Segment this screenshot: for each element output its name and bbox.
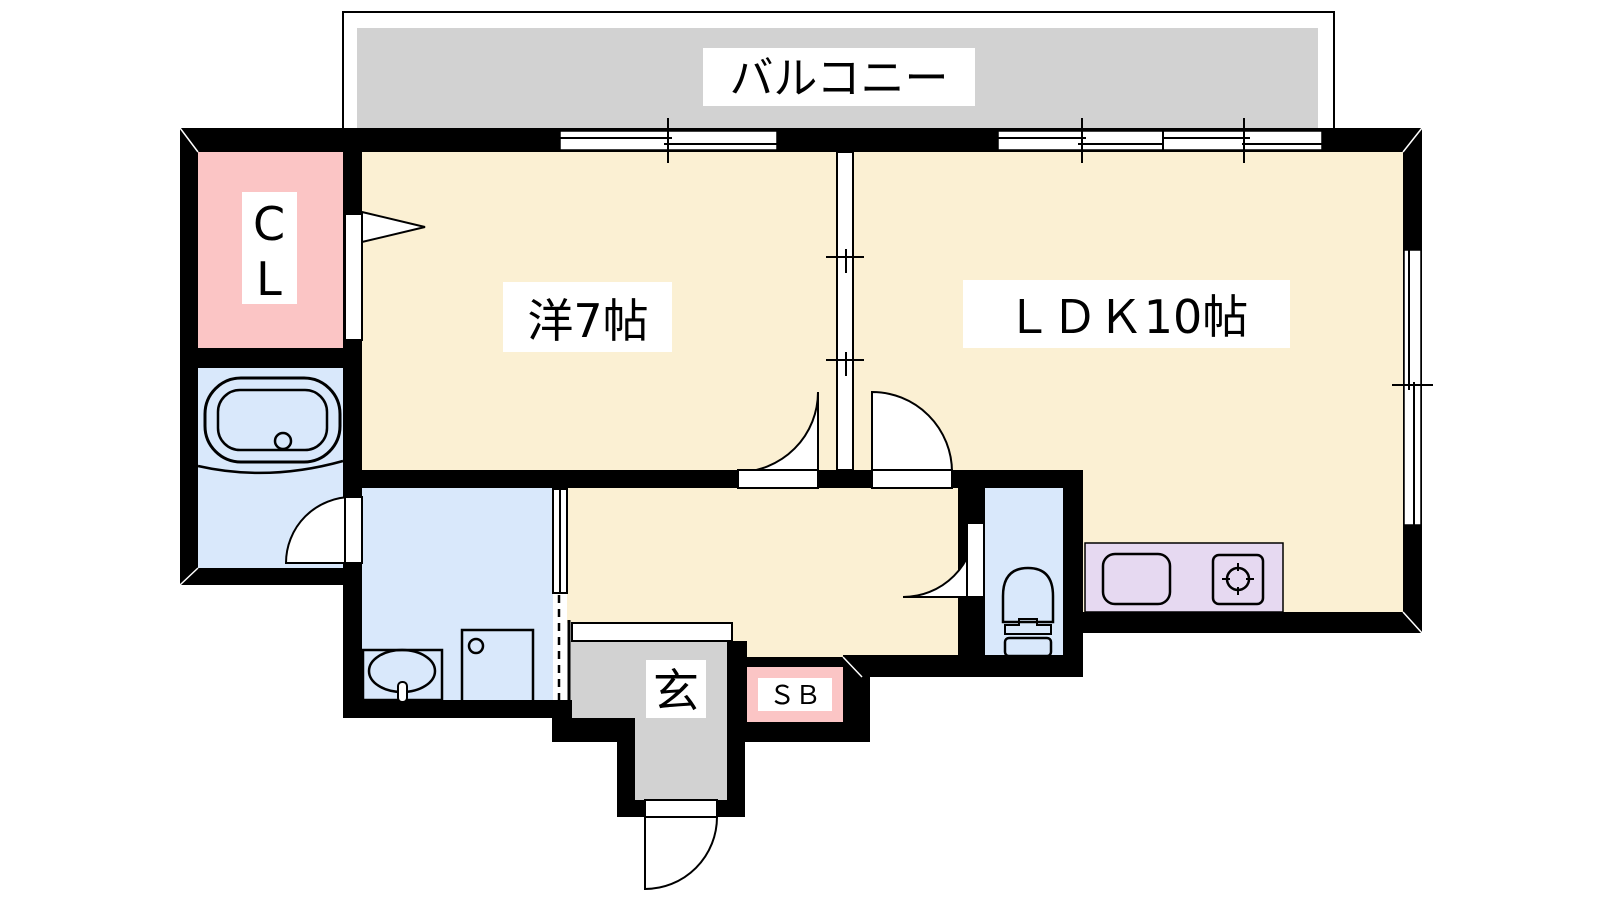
- wall-closet-bath-divider: [198, 348, 343, 368]
- wall-washroom-bottom: [343, 700, 570, 718]
- floorplan-drawing: バルコニー 洋7帖 ＬＤＫ10帖 C L 玄 ＳＢ: [0, 0, 1600, 900]
- wall-shoebox-top: [747, 657, 843, 667]
- wall-toilet-right: [1063, 488, 1083, 677]
- wall-ldk-bottom: [1083, 612, 1422, 633]
- washroom-doorway: [553, 489, 569, 720]
- wall-left: [180, 128, 198, 585]
- balcony-label: バルコニー: [729, 53, 948, 104]
- shoebox-label: ＳＢ: [769, 681, 821, 711]
- bathroom-door-leaf: [345, 497, 362, 563]
- wall-hall-toilet-bottom: [843, 655, 1083, 677]
- toilet-door-leaf: [967, 523, 984, 597]
- floorplan: バルコニー 洋7帖 ＬＤＫ10帖 C L 玄 ＳＢ: [0, 0, 1600, 900]
- wall-bathroom-bottom: [180, 568, 362, 585]
- entrance-label: 玄: [653, 664, 699, 718]
- washroom-floor: [362, 488, 553, 700]
- closet-label-top: C: [253, 197, 285, 251]
- wall-frontdoor-stub-right: [717, 800, 745, 817]
- wall-mid-horizontal: [343, 470, 1083, 488]
- partition-western-ldk: [837, 152, 853, 470]
- ldk-door-leaf: [872, 470, 952, 488]
- western-room-label: 洋7帖: [527, 294, 648, 348]
- western-room-door-leaf: [738, 470, 818, 488]
- wall-shoebox-bottom: [727, 722, 870, 742]
- entrance-step: [572, 623, 732, 641]
- wall-frontdoor-stub-left: [617, 800, 645, 817]
- front-door-swing: [645, 817, 717, 889]
- closet-label-bottom: L: [256, 252, 282, 306]
- front-door-leaf: [645, 800, 717, 817]
- ldk-label: ＬＤＫ10帖: [1006, 290, 1249, 344]
- closet-door-leaf: [345, 214, 362, 340]
